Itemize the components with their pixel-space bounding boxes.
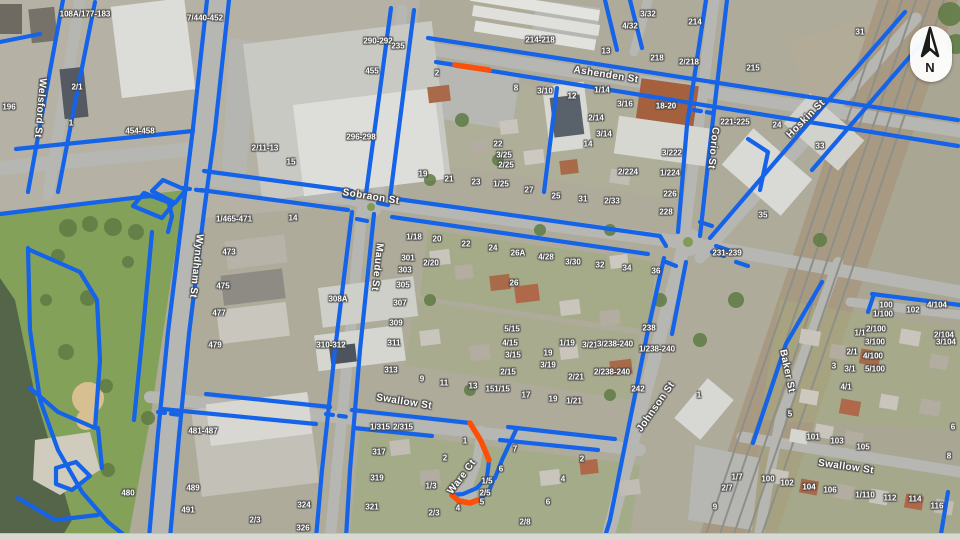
- tree: [455, 113, 469, 127]
- building: [619, 479, 641, 496]
- building: [469, 344, 491, 361]
- building: [559, 344, 579, 360]
- tree: [58, 344, 74, 360]
- road-circle: [367, 203, 375, 211]
- building: [579, 459, 599, 475]
- tree: [99, 379, 113, 393]
- tree: [813, 233, 827, 247]
- building: [429, 249, 451, 266]
- building: [539, 469, 561, 486]
- path-network-line[interactable]: [357, 219, 367, 221]
- path-network-line[interactable]: [344, 196, 354, 198]
- map-viewport[interactable]: Welsford StWyndham StMaude StCorio StAsh…: [0, 0, 960, 540]
- aerial-basemap: [0, 0, 960, 540]
- tree: [534, 224, 546, 236]
- tree: [424, 174, 436, 186]
- building: [609, 169, 631, 186]
- building: [609, 254, 628, 269]
- north-arrow: N: [906, 24, 954, 88]
- building: [514, 284, 540, 304]
- building: [419, 469, 441, 486]
- building: [454, 264, 474, 280]
- path-network-line[interactable]: [378, 203, 388, 205]
- building: [559, 159, 579, 175]
- imagery-edge-strip: [0, 533, 960, 540]
- path-network-line[interactable]: [605, 0, 617, 50]
- building: [389, 439, 411, 456]
- building: [225, 234, 288, 269]
- building: [469, 139, 489, 155]
- tree: [122, 256, 134, 268]
- path-network-line[interactable]: [736, 262, 748, 266]
- tree: [104, 218, 122, 236]
- building: [427, 85, 451, 104]
- tree: [128, 224, 144, 240]
- building: [499, 119, 519, 135]
- tree: [424, 294, 436, 306]
- tree: [604, 389, 616, 401]
- north-arrow-icon: [910, 24, 950, 64]
- tree: [40, 294, 52, 306]
- building: [559, 299, 581, 316]
- building: [489, 274, 511, 291]
- building: [609, 359, 633, 377]
- tree: [141, 411, 155, 425]
- tree: [693, 333, 707, 347]
- tree: [82, 216, 98, 232]
- tree: [464, 384, 476, 396]
- building: [523, 149, 545, 165]
- building: [216, 302, 290, 344]
- building: [220, 268, 285, 305]
- building: [599, 309, 621, 326]
- building: [111, 0, 196, 98]
- building: [0, 4, 22, 34]
- tree: [492, 154, 504, 166]
- tree: [728, 292, 744, 308]
- tree: [59, 219, 77, 237]
- building: [419, 329, 441, 346]
- north-arrow-label: N: [906, 60, 954, 75]
- building: [28, 7, 57, 44]
- building: [674, 378, 733, 440]
- road-circle: [683, 237, 693, 247]
